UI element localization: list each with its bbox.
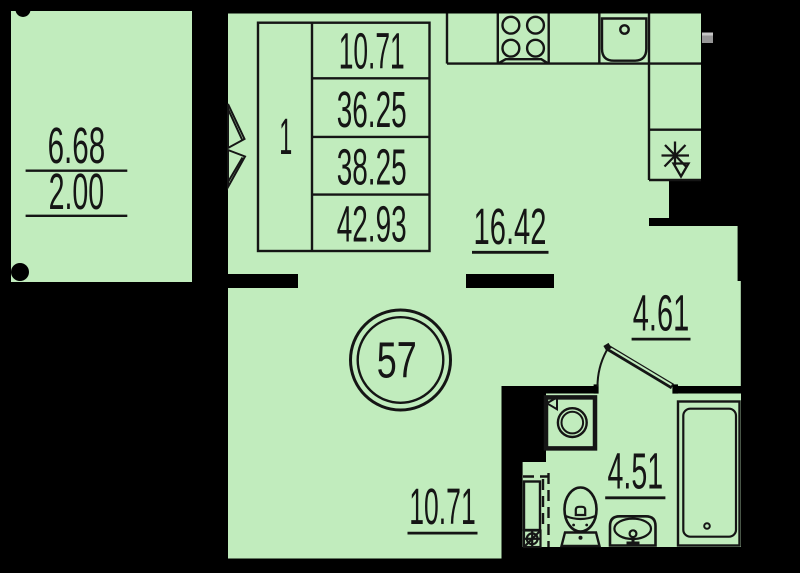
svg-text:1: 1 <box>279 108 292 165</box>
svg-text:42.93: 42.93 <box>337 196 407 253</box>
svg-text:4.51: 4.51 <box>608 443 664 500</box>
svg-text:10.71: 10.71 <box>339 22 405 79</box>
svg-text:38.25: 38.25 <box>337 139 407 196</box>
svg-text:36.25: 36.25 <box>337 81 407 138</box>
svg-text:57: 57 <box>377 331 417 388</box>
svg-text:2.00: 2.00 <box>49 163 105 220</box>
svg-text:16.42: 16.42 <box>474 198 547 255</box>
svg-text:10.71: 10.71 <box>409 478 475 535</box>
svg-text:4.61: 4.61 <box>633 285 689 342</box>
